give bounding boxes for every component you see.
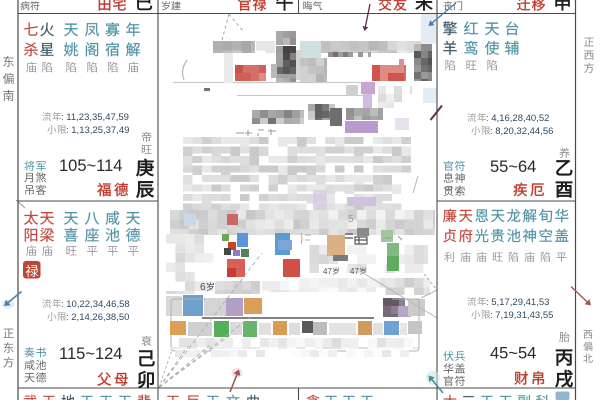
- svg-text:: 1,13,25,37,49: : 1,13,25,37,49: [66, 125, 129, 136]
- svg-text:45~54: 45~54: [490, 345, 536, 363]
- svg-text:: 4,16,28,40,52: : 4,16,28,40,52: [486, 113, 549, 124]
- svg-text:: 5,17,29,41,53: : 5,17,29,41,53: [486, 297, 549, 308]
- svg-text:: 10,22,34,46,58: : 10,22,34,46,58: [61, 299, 130, 310]
- svg-text:55~64: 55~64: [490, 158, 536, 176]
- svg-text:105~114: 105~114: [59, 157, 122, 175]
- svg-text:47: 47: [323, 267, 332, 276]
- svg-text:5: 5: [348, 214, 354, 225]
- svg-text:: 7,19,31,43,55: : 7,19,31,43,55: [490, 310, 553, 321]
- svg-text:115~124: 115~124: [59, 345, 122, 363]
- svg-text:47: 47: [350, 267, 359, 276]
- svg-text:: 2,14,26,38,50: : 2,14,26,38,50: [66, 312, 129, 323]
- svg-text:6: 6: [200, 282, 206, 293]
- svg-text:: 8,20,32,44,56: : 8,20,32,44,56: [490, 126, 553, 137]
- svg-text:: 11,23,35,47,59: : 11,23,35,47,59: [61, 112, 129, 123]
